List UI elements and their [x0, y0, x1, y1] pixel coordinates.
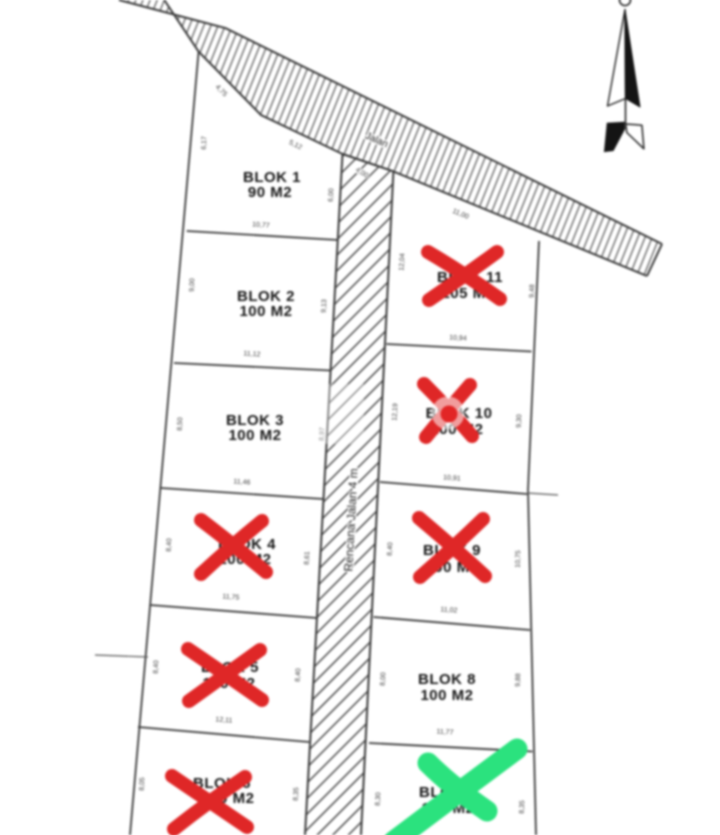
svg-text:8,40: 8,40 — [166, 538, 173, 552]
svg-text:8,40: 8,40 — [153, 660, 160, 674]
svg-text:8,30: 8,30 — [375, 792, 383, 806]
svg-text:11,12: 11,12 — [243, 350, 261, 358]
svg-text:8,05: 8,05 — [139, 777, 146, 791]
svg-text:100 M2: 100 M2 — [420, 687, 473, 704]
svg-text:11,77: 11,77 — [436, 729, 453, 737]
svg-text:BLOK 8: BLOK 8 — [418, 671, 476, 688]
svg-text:10,91: 10,91 — [443, 474, 461, 482]
svg-text:10,94: 10,94 — [449, 335, 467, 343]
svg-text:8,00: 8,00 — [380, 672, 388, 686]
svg-text:100 M2: 100 M2 — [239, 303, 292, 320]
svg-text:12,04: 12,04 — [399, 253, 407, 271]
svg-text:8,35: 8,35 — [519, 800, 526, 814]
svg-text:6,17: 6,17 — [201, 136, 208, 150]
svg-text:11,02: 11,02 — [440, 606, 458, 614]
svg-text:6,00: 6,00 — [328, 188, 336, 202]
svg-text:9,00: 9,00 — [189, 278, 196, 292]
svg-text:11,46: 11,46 — [233, 478, 251, 486]
svg-text:9,30: 9,30 — [516, 414, 523, 428]
svg-text:9,88: 9,88 — [515, 673, 522, 687]
svg-text:9,48: 9,48 — [529, 284, 536, 298]
svg-text:12,19: 12,19 — [392, 403, 400, 421]
svg-text:11,75: 11,75 — [222, 593, 240, 601]
svg-text:8,50: 8,50 — [177, 417, 184, 431]
svg-text:8,61: 8,61 — [304, 551, 312, 565]
svg-text:10,75: 10,75 — [515, 550, 523, 568]
svg-text:9,13: 9,13 — [321, 299, 329, 313]
svg-text:8,40: 8,40 — [387, 542, 395, 556]
svg-text:8,35: 8,35 — [293, 787, 301, 801]
svg-text:12,11: 12,11 — [215, 716, 233, 724]
svg-text:8,40: 8,40 — [295, 668, 303, 682]
svg-text:100 M2: 100 M2 — [228, 427, 281, 444]
svg-text:10,77: 10,77 — [252, 221, 270, 229]
svg-text:90 M2: 90 M2 — [248, 184, 292, 201]
